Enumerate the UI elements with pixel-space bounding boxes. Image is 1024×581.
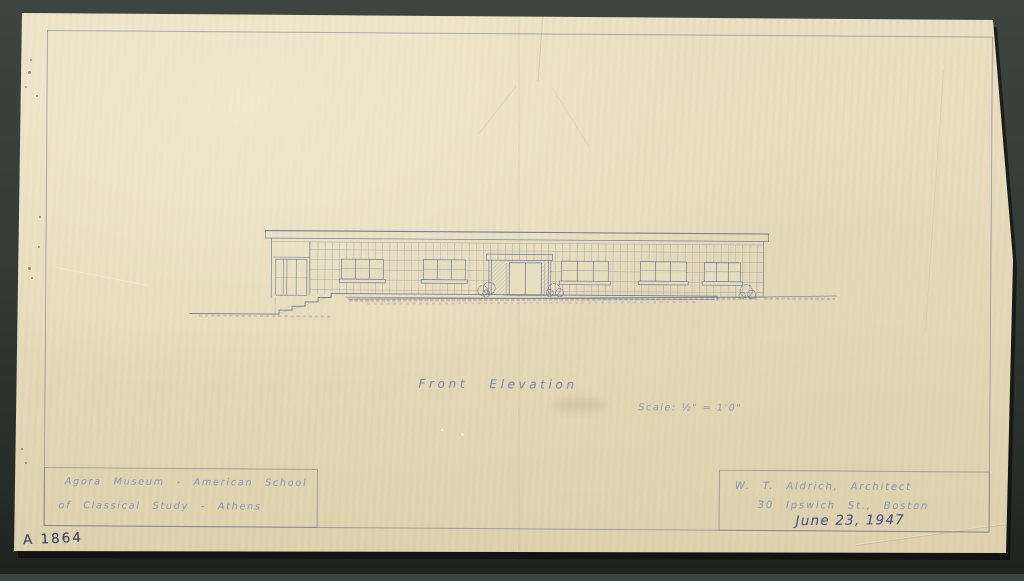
window-group — [339, 259, 385, 283]
window-group — [559, 261, 610, 285]
mount-board: Front Elevation Scale: ½" = 1'0" Agora M… — [0, 0, 1024, 574]
left-wing-glazing — [273, 257, 309, 295]
sheet-content: Front Elevation Scale: ½" = 1'0" Agora M… — [0, 0, 1024, 581]
architect-name: W. T. Aldrich, Architect — [735, 481, 912, 493]
window-group — [421, 260, 467, 284]
project-line-2: of Classical Study - Athens — [59, 500, 262, 512]
title-block-architect: W. T. Aldrich, Architect 30 Ipswich St.,… — [719, 470, 990, 533]
project-line-1: Agora Museum - American School — [65, 476, 308, 489]
elevation-drawing — [178, 206, 869, 341]
catalog-number: A 1864 — [23, 530, 84, 549]
terrace-and-steps — [190, 293, 717, 318]
window-group — [638, 262, 688, 285]
drawing-scale-note: Scale: ½" = 1'0" — [638, 402, 742, 414]
window-group — [702, 263, 742, 286]
drawing-sheet: Front Elevation Scale: ½" = 1'0" Agora M… — [0, 0, 1024, 574]
title-block-project: Agora Museum - American School of Classi… — [44, 467, 318, 528]
drawing-title: Front Elevation — [418, 377, 577, 392]
architect-address: 30 Ipswich St., Boston — [758, 500, 929, 512]
entrance — [486, 254, 552, 295]
drawing-date: June 23, 1947 — [796, 512, 906, 529]
